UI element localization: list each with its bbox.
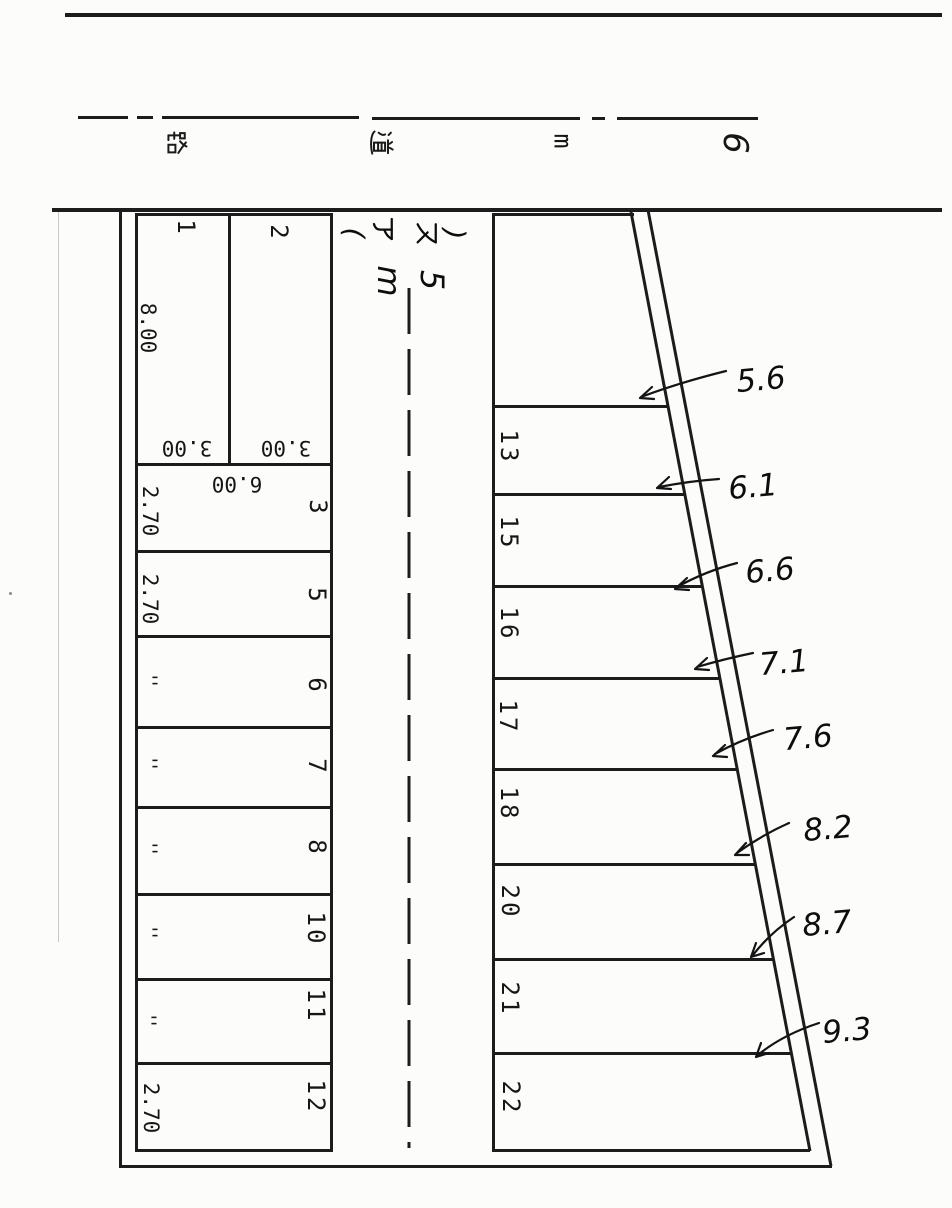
arrow-8-7 [751,917,794,957]
space-11-number: 11 [302,989,330,1024]
row-8-ditto-mark: '' [139,843,161,855]
plot-bottom-boundary [119,1165,832,1168]
right-block-stall-divider [492,677,720,680]
depth-annotation-6-1: 6.1 [727,467,779,507]
space-20-number: 20 [496,885,524,920]
road-centerline-dash [78,116,128,119]
row-3-depth-dim: 2.70 [138,486,162,537]
right-block-stall-divider [492,958,773,961]
right-block-stall-divider [492,585,702,588]
slanted-boundary-outer [648,210,831,1166]
right-block-stall-divider [492,1052,791,1055]
space-17-number: 17 [494,700,522,735]
left-block-row-divider [135,893,333,896]
space-16-number: 16 [495,607,523,642]
row-5-depth-dim: 2.70 [138,574,162,625]
left-block-row-divider [135,550,333,553]
right-block-top-edge [492,213,634,216]
road-unit-m-label: m [549,133,578,148]
space-8-number: 8 [303,839,331,856]
road-centerline-dash [137,116,153,119]
depth-annotation-5-6: 5.6 [735,360,787,400]
slanted-boundary-inner [631,212,810,1151]
driveway-surface-open-paren: ( [338,228,371,239]
depth-annotation-8-7: 8.7 [801,904,853,944]
katakana-su-glyph [412,218,442,248]
left-block-depth-dim: 8.00 [136,303,160,354]
left-block-row-divider [135,726,333,729]
driveway-width-value: 5 [413,270,451,290]
arrow-8-2 [735,823,789,855]
road-centerline-dash [592,117,605,120]
road-top-edge-line [65,13,942,17]
right-block-bottom-edge [492,1149,810,1152]
row-10-ditto-mark: '' [139,927,161,939]
space-3-number: 3 [304,499,332,516]
driveway-surface-close-paren: ) [439,229,472,240]
space-2-number: 2 [265,224,293,241]
kanji-ro-glyph [162,129,190,157]
driveway-width-unit: m [370,265,408,296]
space-5-number: 5 [303,587,331,604]
right-block-stall-divider [492,405,668,408]
depth-annotation-7-1: 7.1 [758,643,810,683]
space-18-number: 18 [495,787,523,822]
space-2-width-dim: 3.00 [261,436,312,460]
arrow-5-6 [640,371,726,399]
depth-annotation-6-6: 6.6 [744,551,796,591]
katakana-a-glyph [368,214,398,244]
space-1-number: 1 [172,219,200,236]
depth-annotation-8-2: 8.2 [802,809,854,849]
row-12-depth-dim: 2.70 [139,1083,163,1134]
right-block-stall-divider [492,863,755,866]
left-block-row-divider [135,635,333,638]
right-block-stall-divider [492,493,685,496]
arrow-7-6 [713,730,773,757]
space-6-number: 6 [303,677,331,694]
left-block-row-divider [135,463,333,466]
depth-annotation-9-3: 9.3 [821,1011,873,1051]
space-21-number: 21 [496,982,524,1017]
scan-speckle [9,592,12,595]
space-15-number: 15 [495,516,523,551]
space-1-width-dim: 3.00 [162,436,213,460]
road-centerline-dash [617,117,758,120]
right-block-stall-divider [492,768,737,771]
row-6-ditto-mark: '' [139,675,161,687]
space-22-number: 22 [497,1081,525,1116]
space-7-number: 7 [303,758,331,775]
left-block-inner-width-dim: 6.00 [212,472,263,496]
depth-annotation-7-6: 7.6 [782,718,834,758]
plot-left-boundary [119,210,122,1168]
row-11-ditto-mark: '' [138,1015,160,1027]
arrow-7-1 [695,653,753,670]
arrow-6-1 [657,477,719,489]
left-block-row-divider [135,1062,333,1065]
row-7-ditto-mark: '' [139,758,161,770]
road-bottom-edge-line [52,208,942,212]
left-block-space1-2-divider [228,213,231,463]
space-13-number: 13 [495,430,523,465]
space-10-number: 10 [302,912,330,947]
left-block-row-divider [135,806,333,809]
space-12-number: 12 [302,1080,330,1115]
plot-plan-scan: 路 道 m 6 1 2 8.00 3.00 3.00 6.00 2.70 3 2… [0,0,952,1208]
road-width-6-label: 6 [715,132,755,154]
road-centerline-dash [162,116,359,119]
scan-artifact-line [58,212,59,942]
right-block-left-edge [492,213,495,1152]
road-centerline-dash [372,117,580,120]
kanji-michi-glyph [367,128,395,156]
left-block-row-divider [135,978,333,981]
